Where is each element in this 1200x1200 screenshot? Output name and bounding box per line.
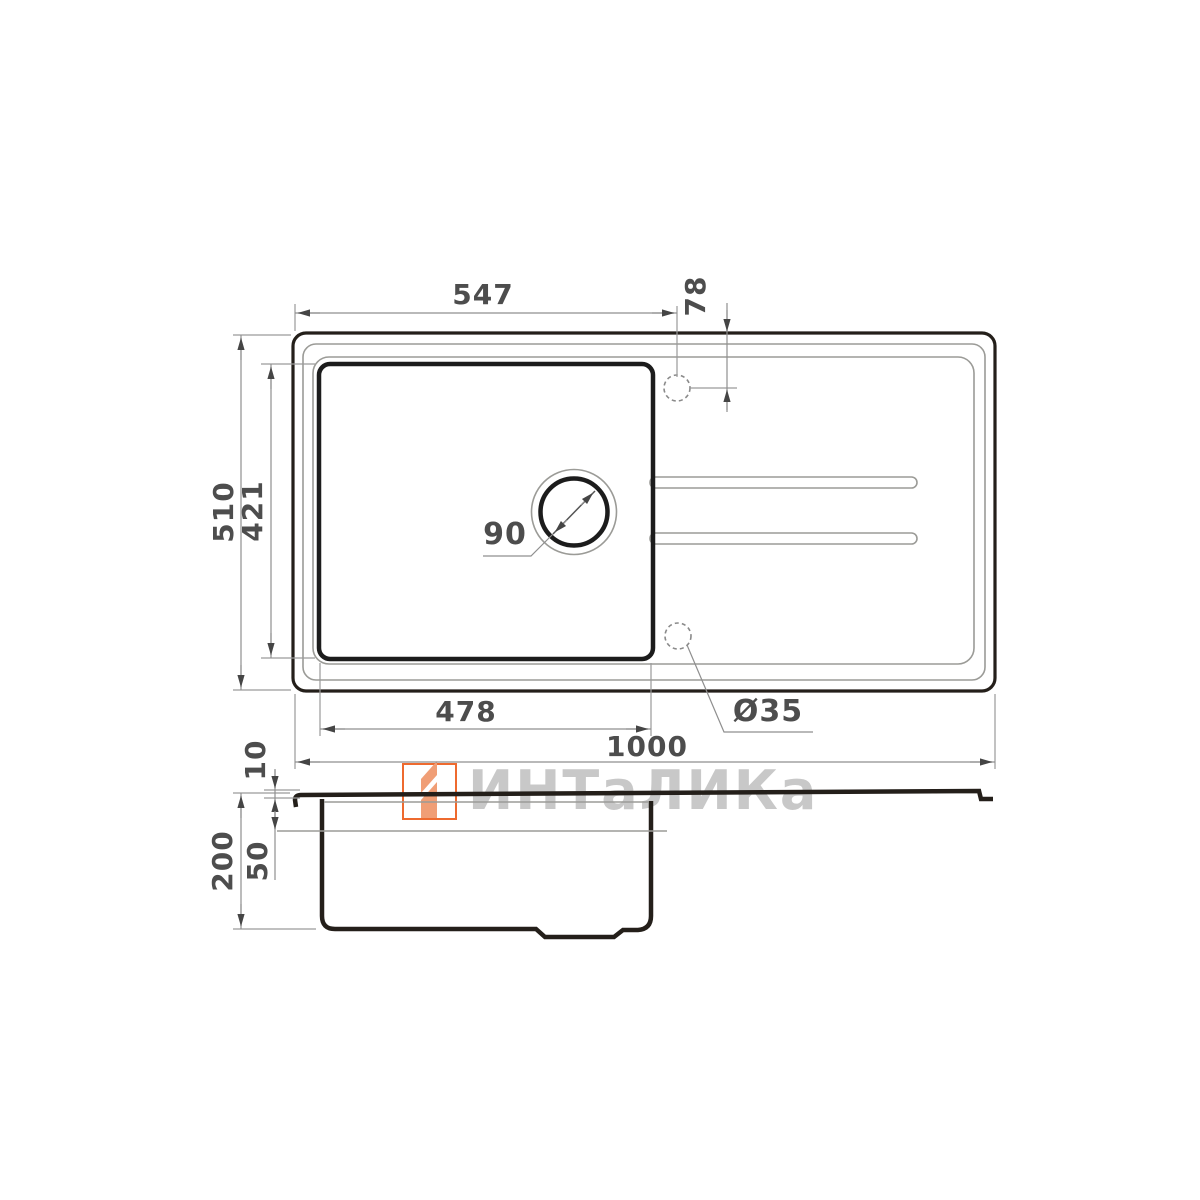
- extension-lines: [233, 304, 995, 929]
- sink-outer-edge: [293, 333, 995, 691]
- dim-label-50: 50: [244, 841, 272, 882]
- dim-label-1000: 1000: [606, 733, 688, 761]
- recess-line: [313, 357, 974, 664]
- tap-hole-top: [664, 375, 690, 401]
- sink-drawing: [0, 0, 1200, 1200]
- dimension-lines: [241, 303, 995, 929]
- dim-label-547: 547: [452, 281, 513, 309]
- sink-rim-line: [303, 344, 985, 680]
- dim-label-78: 78: [682, 276, 710, 317]
- dimension-arrows: [241, 310, 992, 926]
- technical-drawing-canvas: ИНТаЛИКа: [0, 0, 1200, 1200]
- dim-label-90: 90: [483, 520, 527, 550]
- drainboard-groove-bottom: [650, 533, 917, 544]
- section-top-surface: [295, 791, 993, 807]
- side-view: [277, 791, 993, 937]
- dim-label-o35: Ø35: [733, 697, 803, 727]
- bowl-outline: [319, 364, 653, 659]
- top-view: [293, 333, 995, 691]
- drainboard-groove-top: [650, 477, 917, 488]
- dim-label-10: 10: [242, 740, 270, 781]
- dim-label-200: 200: [209, 830, 237, 891]
- dim-label-510: 510: [210, 481, 238, 542]
- section-bowl-profile: [322, 799, 651, 937]
- dim-label-421: 421: [239, 480, 267, 541]
- dim-label-478: 478: [435, 698, 496, 726]
